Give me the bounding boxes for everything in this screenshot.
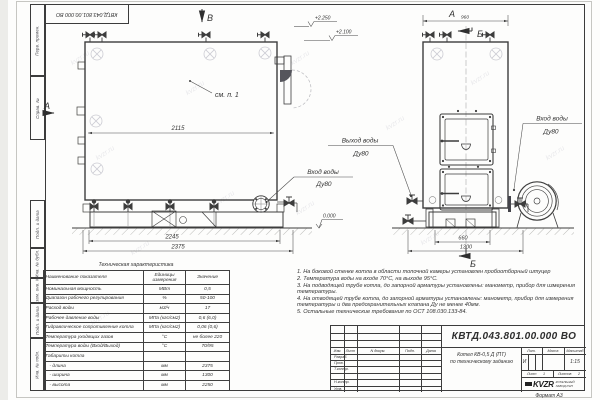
manufacturer-logo: KVZR КОТЕЛЬНЫЙ ЗАВОД РЭП: [523, 378, 585, 391]
hdr-docnum: N докум.: [371, 349, 386, 353]
doc-number-box: КВТД.043.801.00.000 ВО: [441, 326, 586, 348]
sheets-label: Листов: [558, 372, 571, 376]
view-a-title: А: [448, 9, 455, 19]
hdr-izm: Изм.: [334, 349, 342, 353]
dim-2115: 2115: [171, 126, 186, 132]
rear-stack: [275, 56, 311, 108]
top-valve: [483, 32, 495, 42]
table-row: Габариты котла: [44, 352, 230, 362]
bottom-valve: [166, 200, 174, 212]
table-row: - ширинамм1300: [44, 371, 230, 381]
lit-label: Лит.: [527, 349, 536, 353]
note-2: 2. Температура воды на входе 70°С, на вы…: [297, 276, 584, 282]
side-view: [392, 26, 574, 245]
lower-furnace-door: [440, 166, 493, 210]
dim-960: 960: [461, 15, 469, 21]
inlet-side-label: Вход воды: [536, 115, 568, 123]
logo-grate-icon: [525, 382, 532, 388]
note-3: 3. На подводящей трубе котла, до запорно…: [297, 283, 584, 296]
top-valve: [258, 32, 270, 42]
table-row: Температура воды (Вход/Выход)°С70/95: [44, 342, 230, 352]
table-row: Номинальная мощностьМВт0,5: [44, 285, 230, 295]
hdr-list: Лист: [346, 349, 356, 353]
col-header-name: Наименование показателя: [44, 271, 144, 285]
lit-value: И: [523, 359, 527, 365]
outlet-label: Выход воды: [342, 137, 379, 145]
format-note: Формат А3: [513, 393, 585, 399]
bottom-valve: [124, 200, 132, 212]
upper-furnace-door: [440, 110, 496, 165]
note-1: 1. На боковой стенке котла в области топ…: [297, 269, 584, 275]
dim-2245: 2245: [164, 235, 179, 241]
row-tkontr: Т.контр.: [334, 367, 349, 371]
technical-notes: 1. На боковой стенке котла в области топ…: [297, 269, 584, 316]
hdr-podp: Подп.: [405, 349, 415, 353]
table-row: - высотамм2250: [44, 380, 230, 390]
top-valve: [95, 32, 107, 42]
table-row: Температура уходящих газов°Сне более 220: [44, 332, 230, 342]
mass-label: Масса: [548, 349, 559, 353]
bottom-valve: [90, 200, 98, 212]
title-block: КВТД.043.801.00.000 ВО Изм. Лист N докум…: [330, 325, 585, 391]
table-row: - длинамм2375: [44, 361, 230, 371]
scale-label: Масштаб: [566, 349, 583, 353]
row-razrab: Разраб.: [334, 355, 347, 359]
base-frame-side: [426, 209, 499, 227]
company-name: КОТЕЛЬНЫЙ ЗАВОД РЭП: [556, 381, 575, 388]
boiler-body-side: [423, 42, 508, 208]
inlet-front-label: Вход воды: [307, 168, 339, 176]
table-row: Гидравлическое сопротивление котлаМПа (к…: [44, 323, 230, 333]
bottom-valve: [210, 200, 218, 212]
dim-2375: 2375: [170, 245, 185, 251]
top-valve: [199, 32, 211, 42]
front-view: [72, 32, 312, 235]
elevation-2250: +2.250: [315, 16, 331, 22]
sheet-value: 1: [543, 372, 545, 376]
note-5: 5. Остальные технические требования по О…: [297, 309, 584, 315]
sheets-value: 2: [578, 372, 580, 376]
top-valve: [423, 32, 435, 42]
view-b-label: В: [207, 13, 213, 23]
tech-table-title: Техническая характеристика: [43, 262, 229, 268]
tech-table: Наименование показателя Единицыизмерения…: [43, 270, 230, 391]
inlet-side-dn-label: Ду80: [542, 129, 559, 136]
section-b-top: Б: [477, 29, 483, 39]
outlet-dn-label: Ду80: [352, 151, 369, 158]
row-nkontr: Н.контр.: [334, 380, 350, 384]
tech-characteristics: Техническая характеристика Наименование …: [43, 262, 229, 391]
boiler-body-front: [85, 42, 277, 200]
top-valve: [440, 32, 452, 42]
note-4: 4. На отводящей трубе котла, до запорной…: [297, 296, 584, 309]
col-header-units: Единицыизмерения: [144, 271, 186, 285]
row-utv: Утв.: [334, 387, 342, 391]
table-row: Рабочее давление водыМПа (кгс/см2)0,6 (6…: [44, 313, 230, 323]
table-row: Диапазон рабочего регулирования%50-100: [44, 294, 230, 304]
row-prov: Пров.: [334, 361, 344, 365]
dimensions: [44, 9, 582, 256]
side-drain-valve: [284, 197, 294, 206]
dim-660: 660: [458, 236, 468, 242]
logo-text: KVZR: [533, 380, 554, 389]
table-row: Расход водым3/ч17: [44, 304, 230, 314]
col-header-value: Значение: [186, 271, 230, 285]
elevation-2100: +2.100: [336, 30, 352, 36]
inlet-front-dn-label: Ду80: [315, 181, 332, 188]
dim-1300: 1300: [460, 245, 473, 251]
callout-see-note: см. п. 1: [215, 92, 239, 99]
view-a-arrow-label: А: [43, 101, 50, 111]
section-b-bottom: Б: [470, 259, 476, 269]
scale-value: 1:15: [570, 359, 580, 365]
elevation-0: 0.000: [323, 214, 336, 220]
sheet-label: Лист: [527, 372, 537, 376]
inlet-flange: [253, 196, 269, 212]
hdr-data: Дата: [426, 349, 436, 353]
product-title-box: Котел КВ-0,5 Д (ПТ) по техническому зада…: [441, 348, 521, 392]
top-valve: [83, 32, 95, 42]
